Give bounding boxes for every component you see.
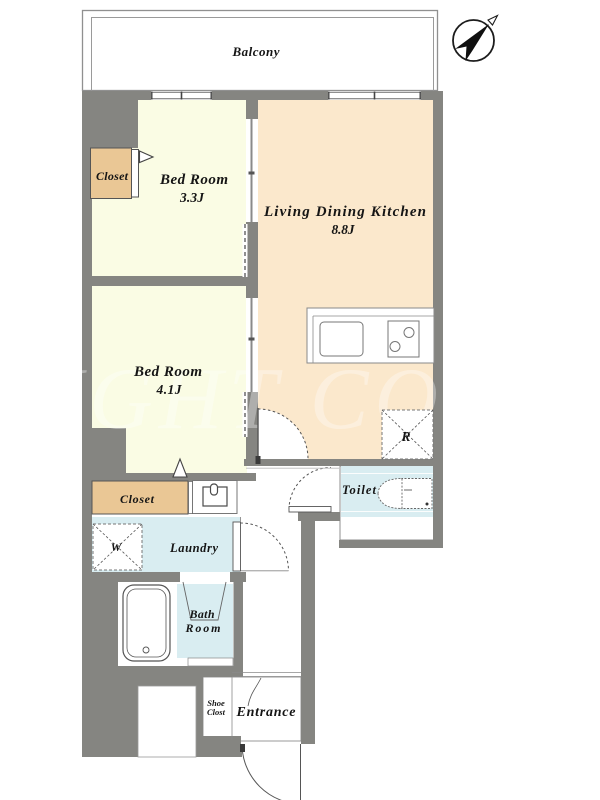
svg-text:3.3J: 3.3J (179, 190, 205, 205)
svg-text:Laundry: Laundry (169, 541, 218, 555)
svg-text:4.1J: 4.1J (156, 382, 183, 397)
svg-text:Entrance: Entrance (236, 705, 296, 720)
svg-text:R: R (400, 429, 410, 444)
svg-text:Bath: Bath (189, 607, 215, 621)
svg-text:Bed Room: Bed Room (133, 364, 202, 380)
svg-text:Living Dining Kitchen: Living Dining Kitchen (263, 204, 426, 220)
svg-text:Balcony: Balcony (232, 44, 280, 59)
svg-text:Clost: Clost (207, 707, 226, 717)
svg-text:Closet: Closet (96, 169, 129, 183)
svg-text:W: W (111, 540, 123, 554)
svg-text:Room: Room (185, 621, 221, 635)
svg-text:8.8J: 8.8J (332, 222, 356, 237)
svg-text:Closet: Closet (120, 492, 155, 506)
svg-text:Bed Room: Bed Room (159, 172, 228, 188)
svg-text:Toilet: Toilet (342, 483, 377, 497)
